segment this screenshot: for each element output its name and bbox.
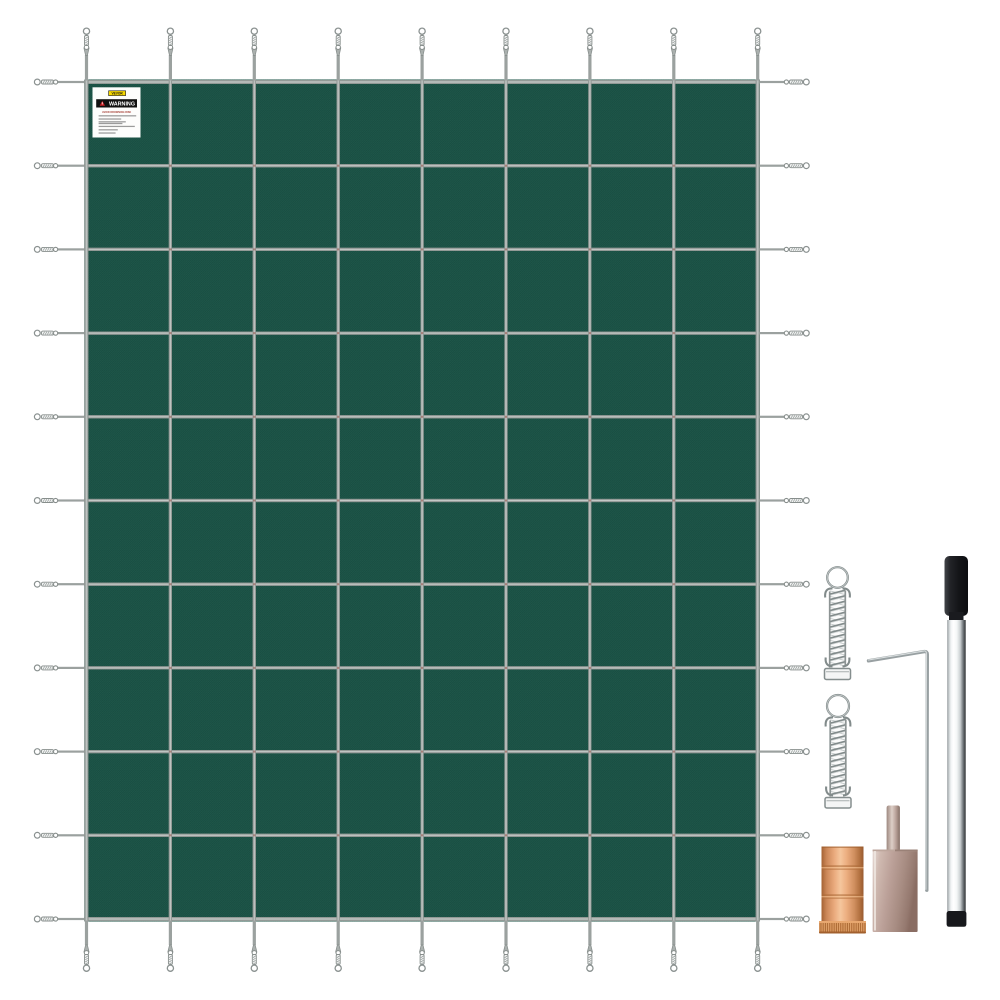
svg-text:AVOID DROWNING RISK: AVOID DROWNING RISK [102,111,131,114]
svg-text:WARNING: WARNING [109,102,135,108]
svg-text:VEVOR: VEVOR [112,92,124,96]
